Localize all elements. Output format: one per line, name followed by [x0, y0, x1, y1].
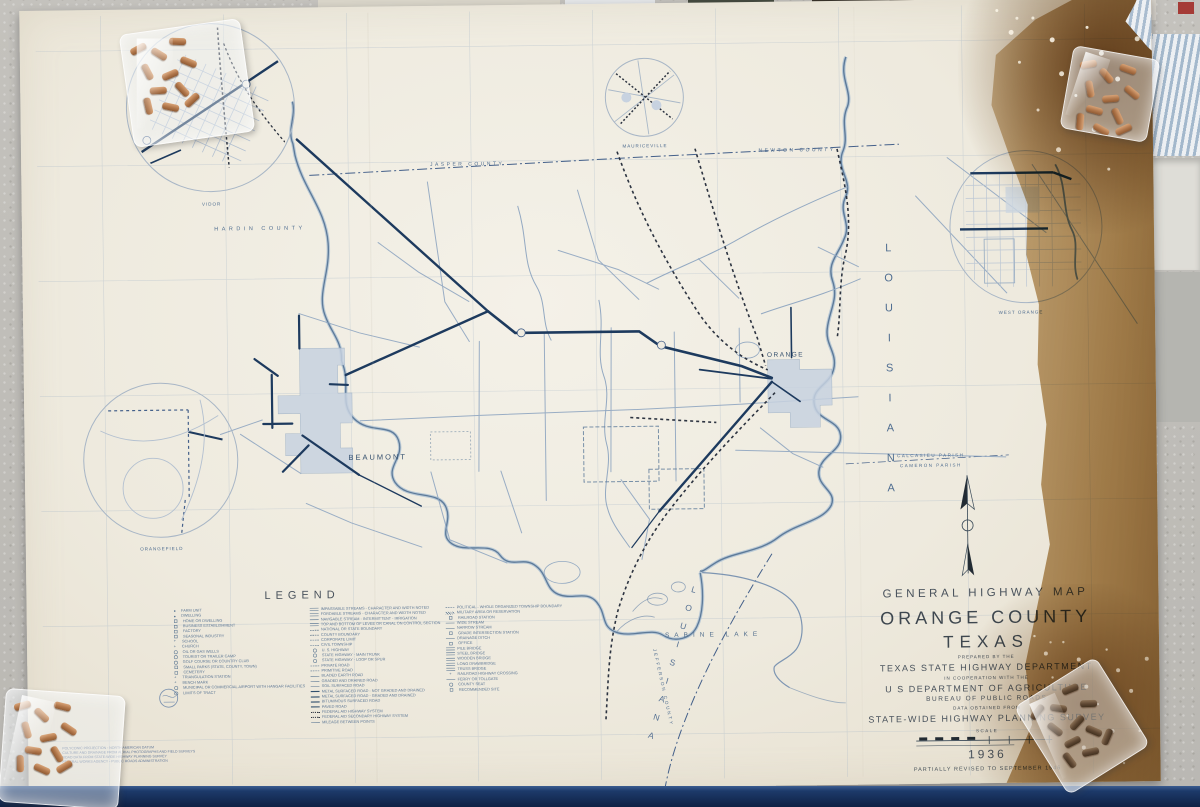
legend-label: SOIL SURFACED ROAD — [322, 684, 365, 689]
legend-label: BENCH MARK — [182, 681, 208, 685]
legend-label: CIVIL TOWNSHIP — [321, 643, 352, 647]
legend-symbol-hatch — [446, 611, 455, 614]
legend-label: RAILROAD HIGHWAY CROSSING — [458, 672, 518, 677]
legend-symbol-square — [175, 671, 178, 674]
inset-orangefield — [83, 382, 239, 538]
metal-clip — [169, 38, 186, 46]
legend-label: PAVED ROAD — [322, 705, 347, 709]
parish-labels: CALCASIEU PARISH CAMERON PARISH — [897, 452, 964, 468]
legend-symbol-double — [310, 613, 319, 616]
legend-symbol-square — [174, 635, 177, 638]
metal-clip — [1069, 714, 1086, 731]
beaumont-label: BEAUMONT — [348, 452, 407, 462]
metal-clip — [1102, 94, 1120, 102]
legend-symbol-square — [174, 620, 177, 623]
inset-mauriceville — [605, 58, 684, 137]
legend-symbol-dot — [174, 615, 176, 617]
metal-clip — [1079, 59, 1097, 69]
legend-symbol-dash — [310, 645, 319, 646]
legend-symbol-line — [446, 628, 455, 629]
metal-clip — [179, 56, 197, 69]
legend-label: STEEL BRIDGE — [457, 652, 485, 656]
legend-item: RECOMMENDED SITE — [447, 687, 564, 692]
metal-clip — [1085, 80, 1095, 98]
metal-clip — [161, 68, 179, 81]
legend-label: GRADE INTERSECTION STATION — [458, 631, 519, 636]
legend-item: LIMITS OF TRACT — [172, 690, 306, 696]
legend-symbol-circle — [174, 655, 178, 659]
legend-label: LONG DRAWBRIDGE — [457, 662, 495, 667]
background-red-object — [1178, 2, 1194, 14]
metal-clip — [1111, 107, 1125, 125]
legend-label: CHURCH — [182, 645, 199, 649]
legend-label: FEDERAL AID HIGHWAY SYSTEM — [322, 709, 383, 714]
legend-label: COUNTY BOUNDARY — [321, 633, 360, 638]
metal-clip — [1123, 84, 1141, 100]
legend-label: HOME OR DWELLING — [183, 619, 223, 624]
legend-label: SCHOOL — [182, 640, 198, 644]
mold-speckles — [995, 9, 998, 12]
legend-label: FARM UNIT — [181, 609, 202, 613]
metal-clip — [1076, 113, 1084, 131]
orangefield-label: ORANGEFIELD — [140, 546, 183, 552]
metal-clip — [33, 763, 51, 776]
legend-label: CEMETERY — [183, 670, 204, 674]
legend-label: TOURIST OR TRAILER CAMP — [183, 655, 236, 660]
legend-label: DRAINAGE DITCH — [457, 636, 490, 640]
metal-clip — [140, 63, 154, 81]
jasper-county-label: JASPER COUNTY — [430, 161, 505, 168]
legend-symbol-double — [446, 668, 455, 671]
legend-symbol-double — [446, 647, 455, 650]
metal-clip — [1085, 104, 1103, 115]
legend-symbol-circle — [313, 649, 317, 653]
legend-symbol-line — [446, 623, 455, 624]
clip-bag-top-left — [119, 18, 256, 148]
metal-clip — [24, 746, 42, 756]
legend-symbol-square — [174, 630, 177, 633]
legend-symbol-rail — [311, 717, 320, 718]
metal-clip — [1101, 728, 1114, 746]
calcasieu-parish-label: CALCASIEU PARISH — [897, 452, 964, 458]
legend-label: NATIONAL OR STATE BOUNDARY — [321, 627, 382, 632]
legend-symbol-square — [450, 688, 453, 691]
legend-symbol-square — [174, 625, 177, 628]
legend-symbol-circle — [313, 654, 317, 658]
legend-symbol-square — [449, 632, 452, 635]
legend-symbol-square — [449, 616, 452, 619]
legend-label: DWELLING — [181, 614, 201, 618]
metal-clip — [1098, 67, 1114, 85]
legend-label: WIDE STREAM — [457, 621, 484, 625]
metal-clip — [1081, 747, 1099, 757]
metal-clip — [1050, 704, 1068, 713]
legend-symbol-double — [446, 658, 455, 661]
legend-symbol-bold — [311, 691, 320, 692]
legend-symbol-line — [446, 638, 455, 639]
photo-scene: 1993 McC — [0, 0, 1200, 807]
metal-clip — [129, 42, 147, 56]
legend-symbol-circle — [174, 650, 178, 654]
legend-label: GRADED AND DRAINED ROAD — [322, 679, 378, 684]
legend-label: OIL OR GAS WELLS — [183, 650, 219, 654]
legend-symbol-double — [310, 608, 319, 611]
legend-label: PILE BRIDGE — [457, 646, 481, 650]
field-outlines — [430, 426, 704, 512]
legend-symbol-dash — [310, 671, 319, 672]
legend-label: BLADED EARTH ROAD — [322, 674, 364, 679]
mauriceville-label: MAURICEVILLE — [622, 143, 667, 149]
legend-symbol-circle — [313, 659, 317, 663]
legend-symbol-dash — [310, 640, 319, 641]
legend-symbol-double — [446, 663, 455, 666]
metal-clip — [53, 701, 71, 712]
metal-clip — [162, 102, 180, 112]
legend-label: RECOMMENDED SITE — [459, 687, 500, 692]
legend-symbol-rail — [311, 712, 320, 713]
metal-clip — [17, 755, 24, 772]
clip-bag-top-right — [1059, 45, 1160, 143]
legend-column-1: FARM UNITDWELLINGHOME OR DWELLINGBUSINES… — [171, 608, 306, 728]
legend-label: PRIMITIVE ROAD — [321, 669, 353, 673]
legend-symbol-dash — [446, 607, 455, 608]
metal-clip — [1061, 683, 1079, 696]
legend-symbol-circle — [174, 686, 178, 690]
metal-clip — [21, 721, 32, 739]
legend-symbol-cross — [171, 645, 180, 649]
metal-clip — [1080, 700, 1097, 708]
legend-label: TRUSS BRIDGE — [457, 667, 486, 671]
legend-symbol-cross — [171, 676, 180, 680]
legend-symbol-circle — [449, 683, 453, 687]
legend-symbol-circle — [174, 691, 178, 695]
metal-clip — [60, 721, 78, 736]
legend-label: MILITARY AREA OR RESERVATION — [457, 610, 520, 615]
mold-speckles — [1033, 635, 1035, 637]
metal-clip — [150, 47, 168, 62]
metal-clip — [39, 732, 57, 742]
legend-label: SMALL PARKS (STATE, COUNTY, TOWN) — [183, 665, 256, 670]
legend-label: WOODEN BRIDGE — [457, 657, 491, 661]
cameron-parish-label: CAMERON PARISH — [900, 462, 962, 468]
legend-label: LIMITS OF TRACT — [183, 691, 216, 695]
legend-symbol-line — [447, 679, 456, 680]
inset-labels: VIDOR MAURICEVILLE WEST ORANGE ORANGEFIE… — [135, 138, 1046, 551]
legend-label: FACTORY — [183, 629, 201, 633]
metal-clip — [174, 81, 191, 98]
legend-label: CORPORATE LIMIT — [321, 638, 356, 642]
legend-label: NARROW STREAM — [457, 626, 492, 630]
legend-label: STATE HIGHWAY - MAIN TRUNK — [322, 653, 380, 658]
legend-label: U. S. HIGHWAY — [322, 648, 350, 652]
city-labels: BEAUMONT ORANGE — [347, 351, 805, 462]
newton-county-label: NEWTON COUNTY — [758, 147, 835, 154]
legend-symbol-cross — [171, 681, 180, 685]
neches-river — [290, 97, 703, 644]
metal-clip — [1085, 724, 1103, 737]
legend-symbol-square — [449, 642, 452, 645]
legend-columns: FARM UNITDWELLINGHOME OR DWELLINGBUSINES… — [171, 606, 423, 727]
legend-label: PRIVATE ROAD — [321, 663, 349, 667]
metal-clip — [1119, 63, 1137, 75]
metal-clip — [50, 745, 65, 763]
legend-symbol-line — [311, 686, 320, 687]
vidor-label: VIDOR — [202, 201, 221, 206]
legend-symbol-dashdot — [310, 635, 319, 636]
highway-shields — [517, 327, 665, 351]
metal-clip — [1029, 703, 1045, 721]
clip-bag-bottom-left — [0, 688, 126, 807]
legend-label: TRIANGULATION STATION — [182, 675, 230, 680]
legend-symbol-bold — [311, 701, 320, 702]
legend-label: GOLF COURSE OR COUNTRY CLUB — [183, 660, 249, 665]
legend-symbol-dash — [310, 666, 319, 667]
legend-symbol-double — [446, 653, 455, 656]
metal-clip — [143, 97, 154, 115]
metal-clip — [1063, 735, 1081, 749]
legend-label: RAILROAD STATION — [458, 615, 495, 619]
legend-column-3: POLITICAL - WHOLE ORGANIZED TOWNSHIP BOU… — [446, 604, 564, 724]
metal-clip — [150, 87, 167, 95]
legend-label: SEASONAL INDUSTRY — [183, 634, 224, 639]
legend-symbol-line — [310, 619, 319, 620]
table-edge-band — [0, 786, 1200, 807]
west-orange-label: WEST ORANGE — [999, 309, 1044, 315]
legend-symbol-line — [311, 676, 320, 677]
legend-symbol-line — [311, 722, 320, 723]
legend: LEGEND FARM UNITDWELLINGHOME OR DWELLING… — [170, 588, 423, 795]
sabine-river — [694, 57, 855, 571]
legend-symbol-dot — [174, 610, 176, 612]
beaumont-city-area — [277, 348, 353, 474]
legend-label: OFFICE — [458, 641, 472, 645]
legend-symbol-cross — [447, 673, 456, 677]
metal-clip — [33, 707, 50, 724]
legend-title: LEGEND — [170, 588, 420, 603]
legend-label: FERRY OR TOLLGATE — [458, 677, 499, 682]
legend-label: MILEAGE BETWEEN POINTS — [322, 720, 375, 725]
legend-symbol-line — [311, 681, 320, 682]
sabine-lake-label: SABINE LAKE — [665, 631, 762, 639]
legend-symbol-bold — [311, 696, 320, 697]
legend-label: BITUMINOUS SURFACED ROAD — [322, 699, 380, 704]
legend-label: BUSINESS ESTABLISHMENT — [183, 624, 235, 629]
orange-label: ORANGE — [767, 351, 804, 358]
legend-label: COUNTY SEAT — [458, 682, 485, 686]
legend-symbol-double — [310, 623, 319, 626]
hardin-county-label: HARDIN COUNTY — [214, 225, 305, 232]
metal-clip — [1114, 123, 1132, 137]
legend-symbol-bold — [311, 706, 320, 707]
metal-clip — [1062, 751, 1078, 769]
legend-symbol-dashdot — [310, 630, 319, 631]
legend-symbol-circle — [174, 661, 178, 665]
legend-symbol-square — [175, 666, 178, 669]
legend-symbol-cross — [171, 640, 180, 644]
north-arrow — [960, 475, 975, 575]
metal-clip — [1046, 721, 1064, 737]
metal-clip — [13, 700, 31, 711]
